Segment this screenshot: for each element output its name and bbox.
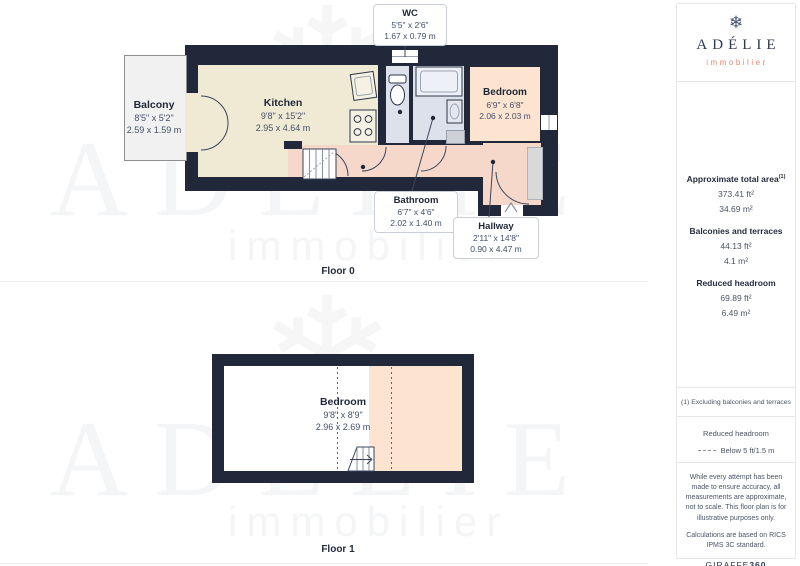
- total-area-label: Approximate total area(1): [677, 174, 795, 184]
- floor1-title: Floor 1: [238, 544, 438, 555]
- room-dim-ft: 5'5" x 2'6": [379, 20, 441, 31]
- legend-item: Below 5 ft/1.5 m: [721, 446, 775, 455]
- room-dim-ft: 6'9" x 6'8": [468, 100, 542, 111]
- floor1-bedroom-label: Bedroom 9'8" x 8'9" 2.96 x 2.69 m: [293, 395, 393, 433]
- balconies-ft: 44.13 ft²: [677, 241, 795, 251]
- room-dim-ft: 6'7" x 4'6": [380, 207, 452, 218]
- balcony-label: Balcony 8'5" x 5'2" 2.59 x 1.59 m: [116, 98, 192, 136]
- closet: [527, 147, 543, 200]
- dashed-line-sample: [698, 450, 716, 451]
- room-dim-ft: 8'5" x 5'2": [116, 112, 192, 124]
- floorplan-page: ❄ ADÉLIE immobilier ❄ ADÉLIE immobilier …: [0, 0, 800, 566]
- wall-stub: [284, 141, 302, 149]
- balconies-m: 4.1 m²: [677, 256, 795, 266]
- credit-normal: GIRAFFE: [705, 560, 749, 566]
- bathroom-callout: Bathroom 6'7" x 4'6" 2.02 x 1.40 m: [374, 191, 458, 233]
- kitchen-room: [198, 146, 288, 177]
- room-dim-m: 2.59 x 1.59 m: [116, 124, 192, 136]
- room-dim-ft: 9'8" x 8'9": [293, 409, 393, 421]
- room-dim-m: 2.95 x 4.64 m: [233, 122, 333, 134]
- footnote-marker: (1): [779, 174, 786, 180]
- bedroom-label: Bedroom 6'9" x 6'8" 2.06 x 2.03 m: [468, 86, 542, 122]
- bathroom-room: [413, 66, 464, 140]
- hallway-room: [288, 145, 483, 177]
- credit-bold: 360: [749, 560, 766, 566]
- footnote-box: (1) Excluding balconies and terraces: [676, 387, 796, 418]
- tagline-watermark: immobilier: [228, 498, 509, 546]
- legend-box: Reduced headroom Below 5 ft/1.5 m: [676, 416, 796, 464]
- kitchen-label: Kitchen 9'8" x 15'2" 2.95 x 4.64 m: [233, 96, 333, 134]
- room-dim-m: 2.02 x 1.40 m: [380, 218, 452, 229]
- wc-room: [386, 66, 409, 143]
- room-dim-m: 0.90 x 4.47 m: [459, 244, 533, 255]
- disclaimer-box: While every attempt has been made to ens…: [676, 462, 796, 559]
- section-divider: [0, 281, 648, 282]
- wc-callout: WC 5'5" x 2'6" 1.67 x 0.79 m: [373, 4, 447, 46]
- room-name: Bathroom: [380, 195, 452, 207]
- brand-tagline: immobilier: [677, 58, 795, 67]
- room-dim-ft: 2'11" x 14'8": [459, 233, 533, 244]
- room-name: Balcony: [116, 98, 192, 112]
- room-name: Kitchen: [233, 96, 333, 110]
- brand-name: ADÉLIE: [677, 37, 795, 54]
- room-dim-ft: 9'8" x 15'2": [233, 110, 333, 122]
- hallway-callout: Hallway 2'11" x 14'8" 0.90 x 4.47 m: [453, 217, 539, 259]
- logo-box: ❄ ADÉLIE immobilier: [676, 3, 796, 83]
- total-area-ft: 373.41 ft²: [677, 189, 795, 199]
- total-area-m: 34.69 m²: [677, 204, 795, 214]
- balconies-label: Balconies and terraces: [677, 226, 795, 236]
- disclaimer-text-1: While every attempt has been made to ens…: [677, 473, 795, 524]
- headroom-m: 6.49 m²: [677, 308, 795, 318]
- section-divider: [0, 563, 648, 564]
- giraffe360-credit: GIRAFFE360: [677, 560, 795, 566]
- headroom-ft: 69.89 ft²: [677, 293, 795, 303]
- room-name: Bedroom: [293, 395, 393, 409]
- floor0-title: Floor 0: [238, 266, 438, 277]
- room-dim-m: 1.67 x 0.79 m: [379, 31, 441, 42]
- total-area-text: Approximate total area: [687, 174, 779, 184]
- room-name: Bedroom: [468, 86, 542, 100]
- room-dim-m: 2.06 x 2.03 m: [468, 111, 542, 122]
- legend-title: Reduced headroom: [677, 429, 795, 438]
- room-name: WC: [379, 8, 441, 20]
- washer: [446, 130, 465, 144]
- room-name: Hallway: [459, 221, 533, 233]
- footnote-text: (1) Excluding balconies and terraces: [681, 399, 791, 406]
- areas-box: Approximate total area(1) 373.41 ft² 34.…: [676, 81, 796, 389]
- snowflake-logo-icon: ❄: [677, 13, 795, 33]
- disclaimer-text-2: Calculations are based on RICS IPMS 3C s…: [677, 531, 795, 551]
- room-dim-m: 2.96 x 2.69 m: [293, 421, 393, 433]
- headroom-label: Reduced headroom: [677, 278, 795, 288]
